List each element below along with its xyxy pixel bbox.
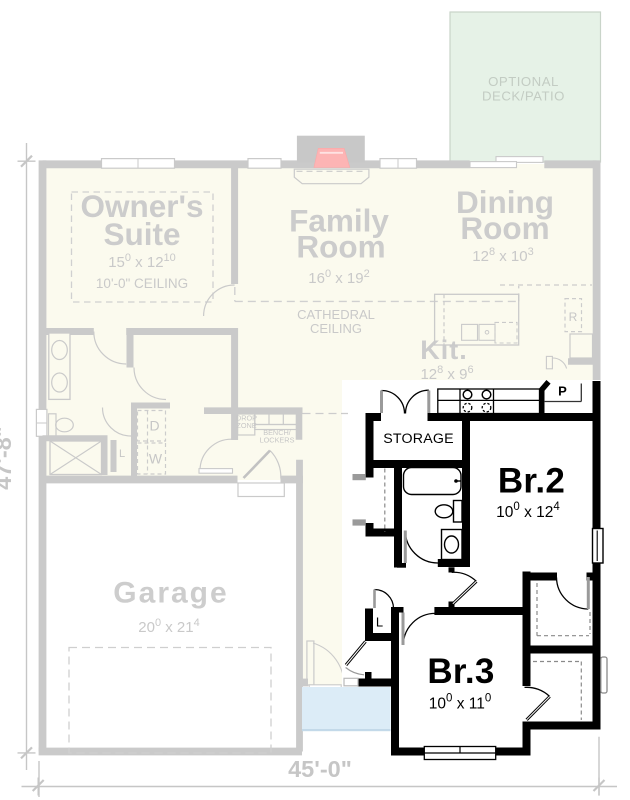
svg-text:Room: Room bbox=[296, 229, 385, 265]
svg-text:P: P bbox=[558, 384, 567, 399]
svg-text:L: L bbox=[376, 615, 383, 630]
svg-text:ZONE: ZONE bbox=[236, 421, 256, 430]
svg-text:Garage: Garage bbox=[113, 577, 228, 610]
svg-text:W: W bbox=[149, 451, 163, 467]
svg-text:45'-0": 45'-0" bbox=[288, 756, 352, 782]
svg-text:Br.3: Br.3 bbox=[427, 652, 494, 691]
svg-text:160 x 192: 160 x 192 bbox=[308, 268, 369, 287]
svg-text:100 x 110: 100 x 110 bbox=[429, 693, 492, 713]
svg-text:OPTIONAL: OPTIONAL bbox=[488, 74, 559, 89]
svg-text:LOCKERS: LOCKERS bbox=[260, 436, 295, 445]
svg-text:CEILING: CEILING bbox=[310, 321, 362, 336]
svg-text:Suite: Suite bbox=[103, 216, 180, 252]
svg-text:STORAGE: STORAGE bbox=[383, 431, 454, 447]
svg-text:100 x 124: 100 x 124 bbox=[496, 501, 560, 521]
svg-text:DECK/PATIO: DECK/PATIO bbox=[482, 89, 565, 104]
svg-text:R: R bbox=[569, 310, 578, 324]
svg-text:128 x 103: 128 x 103 bbox=[472, 246, 533, 265]
svg-text:Room: Room bbox=[460, 210, 549, 246]
svg-text:L: L bbox=[119, 448, 125, 460]
svg-text:D: D bbox=[149, 418, 159, 434]
svg-text:200 x 214: 200 x 214 bbox=[138, 617, 199, 636]
svg-text:10'-0" CEILING: 10'-0" CEILING bbox=[96, 276, 188, 291]
svg-text:47'-8": 47'-8" bbox=[0, 426, 16, 490]
svg-text:Br.2: Br.2 bbox=[498, 462, 565, 501]
svg-text:CATHEDRAL: CATHEDRAL bbox=[297, 307, 375, 322]
